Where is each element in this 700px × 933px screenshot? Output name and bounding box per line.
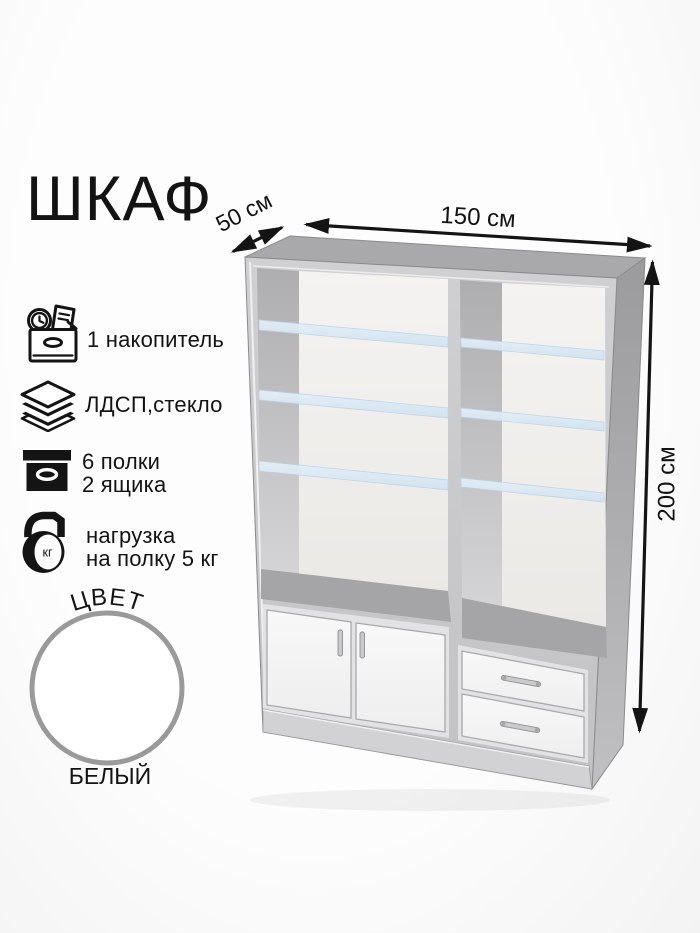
door-left bbox=[267, 610, 351, 718]
drawer-box-icon bbox=[22, 449, 72, 493]
feature-material-label: ЛДСП,стекло bbox=[85, 393, 223, 416]
right-inner-wall bbox=[460, 280, 502, 606]
cabinet-shadow bbox=[250, 789, 610, 811]
left-back-panel bbox=[299, 271, 448, 591]
weight-unit-label: кг bbox=[42, 546, 52, 560]
feature-load-label: нагрузка на полку 5 кг bbox=[86, 524, 219, 570]
left-display-compartment bbox=[257, 268, 451, 622]
product-spec-page: ШКАФ 50 см 150 см 200 см 1 накопитель bbox=[0, 0, 700, 933]
kettlebell-weight-icon: кг bbox=[17, 511, 72, 574]
dimension-width-label: 150 см bbox=[427, 201, 528, 235]
page-title: ШКАФ bbox=[26, 168, 212, 231]
door-right-handle bbox=[360, 632, 365, 658]
door-left-handle bbox=[338, 630, 343, 656]
door-right bbox=[356, 623, 445, 732]
feature-storage-label: 1 накопитель bbox=[87, 328, 224, 351]
right-back-panel bbox=[502, 283, 606, 627]
right-display-compartment bbox=[460, 280, 607, 658]
dimension-height-label: 200 см bbox=[654, 436, 682, 533]
material-layers-icon bbox=[18, 380, 78, 432]
color-swatch-circle bbox=[32, 613, 182, 763]
feature-shelves-label: 6 полки 2 ящика bbox=[82, 450, 166, 496]
storage-box-icon bbox=[26, 303, 80, 365]
left-inner-wall bbox=[257, 268, 299, 573]
color-value: БЕЛЫЙ bbox=[58, 763, 162, 790]
